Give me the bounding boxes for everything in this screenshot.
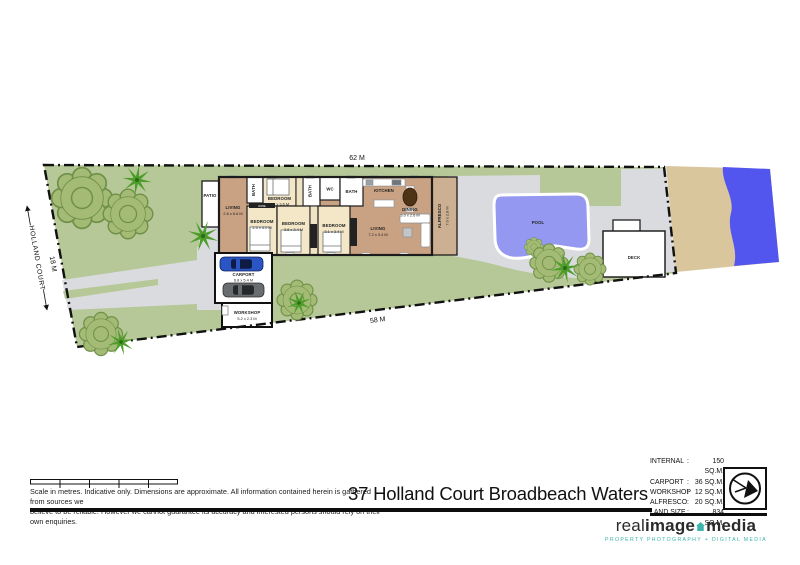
hall-1 xyxy=(296,177,303,206)
bath1-label: BATH xyxy=(251,184,256,196)
kitchen-label: KITCHEN xyxy=(374,188,394,193)
bedroom4-size: 3.1 x 3.4 M xyxy=(324,229,343,234)
house-icon xyxy=(696,516,705,525)
living2-size: 7.2 x 3.4 M xyxy=(368,232,387,237)
carport-size: 6.8 x 5.4 M xyxy=(234,278,253,283)
pool-label: POOL xyxy=(532,220,545,225)
carport: CARPORT 6.8 x 5.4 M xyxy=(215,253,272,303)
area-row-alfresco: ALFRESCO:20 SQ.M. xyxy=(650,498,724,508)
bath3-label: BATH xyxy=(345,189,357,194)
brand-logo: realimagemedia PROPERTY PHOTOGRAPHY + DI… xyxy=(605,516,767,543)
bath2-label: BATH xyxy=(308,185,313,197)
workshop-label: WORKSHOP xyxy=(234,310,261,315)
dim-top: 62 M xyxy=(349,155,365,162)
bedroom1-label: BEDROOM xyxy=(268,196,291,201)
area-value: 20 SQ.M. xyxy=(692,498,724,508)
dim-bottom: 58 M xyxy=(370,316,386,325)
area-row-workshop: WORKSHOP:12 SQ.M. xyxy=(650,488,724,498)
round-tree xyxy=(103,189,153,239)
area-row-internal: INTERNAL:150 SQ.M. xyxy=(650,457,724,478)
north-arrow-icon xyxy=(723,467,767,515)
round-tree xyxy=(52,168,113,229)
area-value: 12 SQ.M. xyxy=(692,488,724,498)
floorplan-page: POOL DECK xyxy=(0,0,800,565)
dim-left: 18 M xyxy=(48,256,58,273)
bedroom4-label: BEDROOM xyxy=(322,223,345,228)
logo-word-image: image xyxy=(645,516,695,535)
page-title: 37 Holland Court Broadbeach Waters xyxy=(330,483,648,505)
round-tree xyxy=(530,244,568,282)
living1-size: 2.6 x 6.6 M xyxy=(223,211,242,216)
dining-label: DINING xyxy=(402,207,418,212)
deck-label: DECK xyxy=(628,255,641,260)
area-value: 150 SQ.M. xyxy=(692,457,724,478)
robe-label: ROBE xyxy=(258,204,266,208)
bedroom2-size: 2.5 x 4.0 M xyxy=(252,225,271,230)
wc-label: WC xyxy=(326,187,333,192)
bedroom1-size: 2.4 x 3.6 M xyxy=(270,202,289,207)
dining-size: 3.0 x 2.6 M xyxy=(400,213,419,218)
bedroom3-size: 3.8 x 3.4 M xyxy=(284,227,303,232)
house: ROBE xyxy=(202,176,457,255)
carport-label: CARPORT xyxy=(233,272,255,277)
logo-tagline: PROPERTY PHOTOGRAPHY + DIGITAL MEDIA xyxy=(605,537,767,543)
living2-label: LIVING xyxy=(371,226,386,231)
logo-word-real: real xyxy=(616,516,645,535)
room-patio xyxy=(202,181,219,227)
alfresco-size: 7.0 x 2.8 M xyxy=(445,206,450,225)
area-label: WORKSHOP xyxy=(650,488,687,498)
area-label: ALFRESCO xyxy=(650,498,687,508)
site-plan: POOL DECK xyxy=(0,0,800,460)
bedroom3-label: BEDROOM xyxy=(282,221,305,226)
bedroom2-label: BEDROOM xyxy=(250,219,273,224)
round-tree xyxy=(574,253,606,285)
patio-label: PATIO xyxy=(204,193,218,198)
area-label: INTERNAL xyxy=(650,457,687,478)
workshop-size: 5.2 x 2.3 M xyxy=(237,316,256,321)
logo-word-media: media xyxy=(706,516,756,535)
area-value: 36 SQ.M. xyxy=(692,478,724,488)
area-row-carport: CARPORT:36 SQ.M. xyxy=(650,478,724,488)
car-grey xyxy=(223,283,264,297)
street-label: HOLLAND COURT xyxy=(27,225,45,291)
title-rule xyxy=(30,508,652,512)
area-label: CARPORT xyxy=(650,478,687,488)
living1-label: LIVING xyxy=(226,205,241,210)
car-blue xyxy=(220,257,263,271)
alfresco-label: ALFRESCO xyxy=(437,203,442,228)
